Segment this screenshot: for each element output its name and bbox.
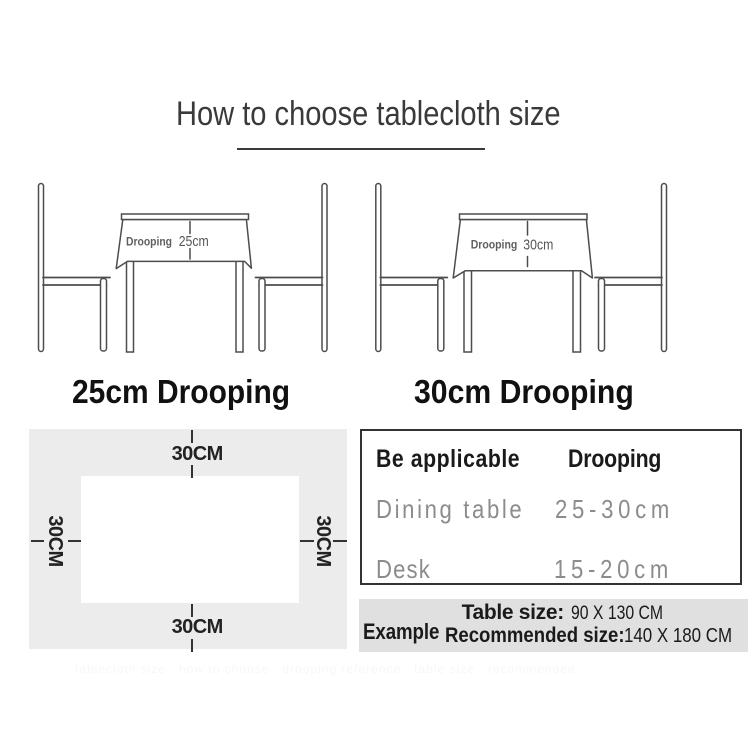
svg-text:25cm: 25cm xyxy=(179,233,209,250)
svg-text:Drooping: Drooping xyxy=(126,235,172,249)
svg-text:30cm: 30cm xyxy=(523,236,553,253)
svg-text:Drooping: Drooping xyxy=(471,238,518,252)
